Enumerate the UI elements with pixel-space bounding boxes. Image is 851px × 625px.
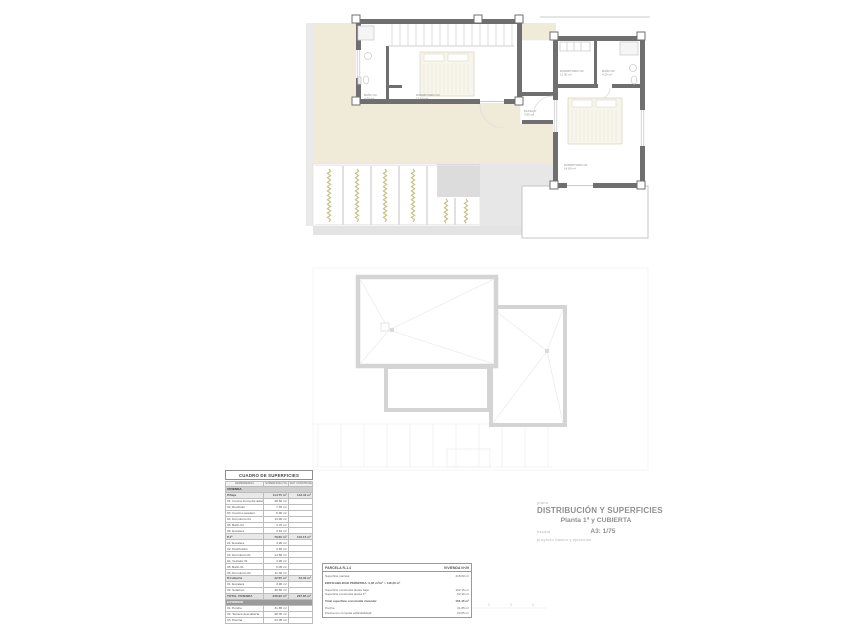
scale-value: A3: 1/75 xyxy=(590,528,615,535)
room-area: 3.65 m² xyxy=(524,113,534,117)
scale-row: escala A3: 1/75 xyxy=(537,528,667,535)
roof-plan xyxy=(313,268,648,470)
plano-label: plano xyxy=(537,500,667,505)
cell: 02. Terraza descubierta xyxy=(226,611,264,617)
roof-drain-icon xyxy=(390,328,394,332)
gray-slab xyxy=(437,164,480,197)
faint-hatch xyxy=(313,424,553,467)
sheet-subtitle: Planta 1ª y CUBIERTA xyxy=(537,517,655,524)
drawing-sheet: BAÑO 03 4.30 m² DORMITORIO 03 12.60 m² P… xyxy=(0,0,851,625)
carport-outline xyxy=(522,186,648,238)
floor-plan: BAÑO 03 4.30 m² DORMITORIO 03 12.60 m² P… xyxy=(306,15,650,238)
cell: 03. Piscina xyxy=(226,617,264,623)
cell: 01. Cocina-Comedor-Estar xyxy=(226,498,264,504)
parcel-id: PARCELA R-1.4 xyxy=(325,566,351,570)
title-block: plano DISTRIBUCIÓN Y SUPERFICIES Planta … xyxy=(537,500,667,542)
surfaces-table-title: CUADRO DE SUPERFICIES xyxy=(225,470,313,480)
surfaces-table: CUADRO DE SUPERFICIES DEPENDENCIA SUPERF… xyxy=(225,470,313,624)
escala-label: escala xyxy=(537,529,550,534)
project-note: proyecto básico y ejecución xyxy=(537,537,667,542)
roof-hip-right xyxy=(491,307,565,425)
cell: 23.05 m² xyxy=(264,617,288,623)
row-label: Piscina (no computa edificabilidad): xyxy=(325,611,372,616)
row-label: EDIFICABILIDAD PERMITIDA: 0,35 m²/m² = 1… xyxy=(325,581,400,586)
parcel-row: Piscina (no computa edificabilidad): 23.… xyxy=(325,611,469,616)
row-value: 52.30 m² xyxy=(457,592,469,597)
row-label: Superficie parcela: xyxy=(325,574,350,579)
room-area: 11.30 m² xyxy=(560,73,572,77)
bed-furniture-right xyxy=(568,98,622,144)
parcel-table-header: PARCELA R-1.4 VIVIENDA Nº29 xyxy=(323,564,471,572)
cell xyxy=(288,617,312,623)
roof-flat-section xyxy=(386,367,489,410)
roof-drain-icon xyxy=(545,349,549,353)
sheet-title: DISTRIBUCIÓN Y SUPERFICIES xyxy=(537,506,667,515)
room-area: 14.80 m² xyxy=(564,167,576,171)
table-row: 03. Piscina23.05 m² xyxy=(226,617,313,623)
row-label: Superficie construida planta 1ª: xyxy=(325,592,366,597)
row-label: Total superficie construida vivienda: xyxy=(325,599,377,604)
row-value: 23.05 m² xyxy=(457,611,469,616)
scale-tick: 2 xyxy=(488,603,490,607)
roof-hip-left xyxy=(358,277,496,366)
plans-canvas: BAÑO 03 4.30 m² DORMITORIO 03 12.60 m² P… xyxy=(0,0,851,625)
room-area: 4.30 m² xyxy=(364,97,374,101)
scale-tick: 4 xyxy=(532,603,534,607)
room-area: 4.25 m² xyxy=(602,73,612,77)
parcel-table: PARCELA R-1.4 VIVIENDA Nº29 Superficie p… xyxy=(322,563,472,618)
row-value: 418.00 m² xyxy=(455,574,469,579)
scale-tick: 3 xyxy=(510,603,512,607)
row-value: 154.45 m² xyxy=(455,599,469,604)
room-area: 12.60 m² xyxy=(416,97,428,101)
vivienda-id: VIVIENDA Nº29 xyxy=(444,566,469,570)
roof-hatch-box xyxy=(381,323,389,331)
bed-furniture-left xyxy=(420,52,474,96)
faint-detail-box xyxy=(447,449,490,467)
